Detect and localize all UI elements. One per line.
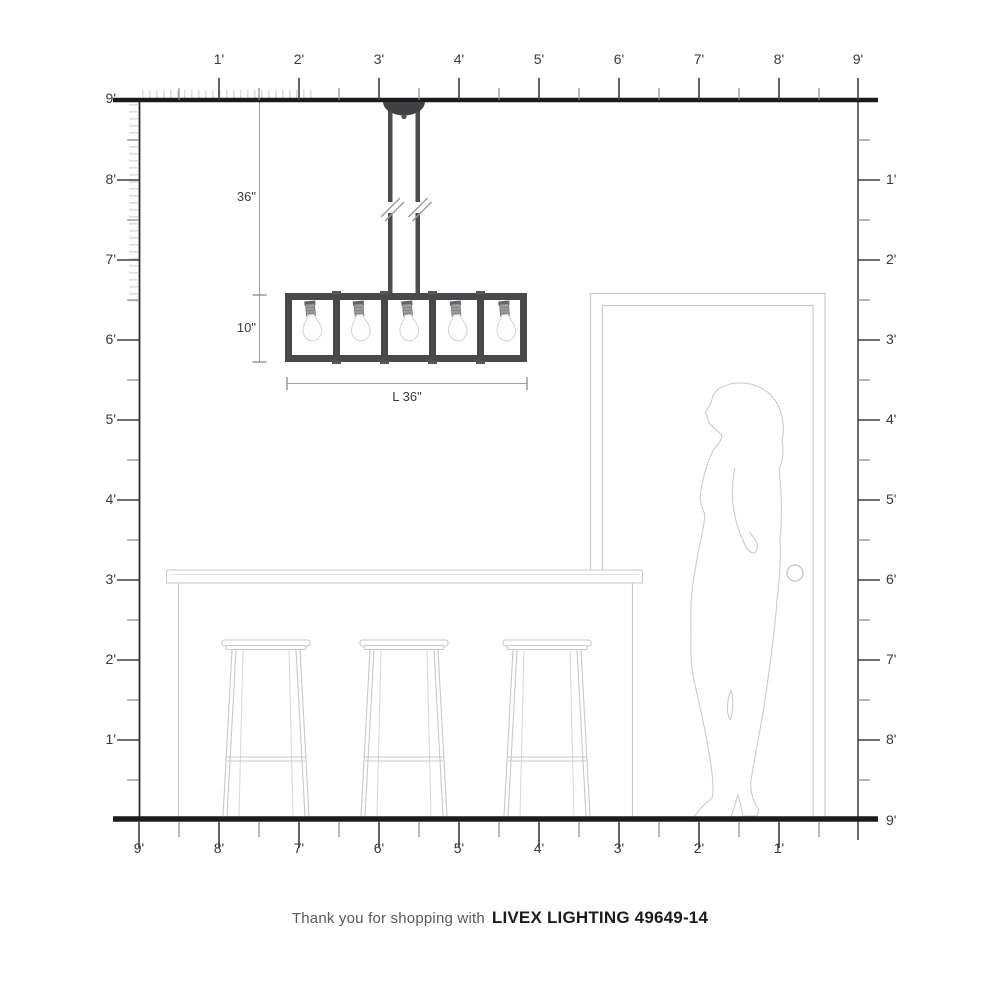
- right-ruler-floor-label: 9': [886, 812, 896, 828]
- bulb-icon: [397, 300, 419, 341]
- footer-product-name: LIVEX LIGHTING 49649-14: [492, 908, 708, 928]
- fixture-height-label: 10": [206, 320, 256, 335]
- downrod: [416, 102, 421, 294]
- island-countertop: [167, 570, 643, 583]
- top-ruler-label: 3': [359, 51, 399, 67]
- right-ruler-label: 1': [886, 171, 896, 187]
- chandelier: [285, 102, 527, 364]
- top-ruler-label: 1': [199, 51, 239, 67]
- right-ruler-label: 3': [886, 331, 896, 347]
- bottom-ruler-label: 8': [199, 840, 239, 856]
- top-ruler-label: 9': [838, 51, 878, 67]
- island-cabinet: [179, 583, 633, 819]
- bottom-ruler-label: 7': [279, 840, 319, 856]
- left-ruler-label: 7': [78, 251, 116, 267]
- bulb-icon: [300, 300, 322, 341]
- bottom-ruler-label: 2': [679, 840, 719, 856]
- footer-thanks-text: Thank you for shopping with: [292, 910, 485, 927]
- top-ruler-label: 5': [519, 51, 559, 67]
- left-ruler-label: 5': [78, 411, 116, 427]
- left-ruler-label: 4': [78, 491, 116, 507]
- right-ruler-label: 5': [886, 491, 896, 507]
- bulb-icon: [446, 300, 468, 341]
- downrod: [388, 102, 393, 294]
- product-dimension-diagram: { "title": "Room scale diagram for linea…: [0, 0, 1000, 1000]
- right-ruler-label: 2': [886, 251, 896, 267]
- top-ruler-label: 2': [279, 51, 319, 67]
- left-ruler-label: 2': [78, 651, 116, 667]
- drop-dimension-label: 36": [206, 189, 256, 204]
- bulbs: [300, 300, 516, 341]
- footer: Thank you for shopping with LIVEX LIGHTI…: [0, 908, 1000, 928]
- bottom-ruler-label: 6': [359, 840, 399, 856]
- fixture-length-label: L 36": [372, 389, 442, 404]
- right-ruler-label: 8': [886, 731, 896, 747]
- top-ruler-label: 7': [679, 51, 719, 67]
- doorknob: [787, 565, 803, 581]
- bulb-icon: [494, 300, 516, 341]
- right-ruler-label: 7': [886, 651, 896, 667]
- top-ruler-label: 4': [439, 51, 479, 67]
- bottom-ruler-label: 5': [439, 840, 479, 856]
- left-ruler-label: 8': [78, 171, 116, 187]
- left-ruler-label: 6': [78, 331, 116, 347]
- bottom-ruler-label: 1': [759, 840, 799, 856]
- left-ruler-label: 9': [78, 90, 116, 106]
- left-ruler-label: 1': [78, 731, 116, 747]
- top-ruler-label: 8': [759, 51, 799, 67]
- right-ruler-label: 6': [886, 571, 896, 587]
- top-ruler-ticks: [179, 78, 858, 100]
- left-ruler-label: 3': [78, 571, 116, 587]
- top-ruler-label: 6': [599, 51, 639, 67]
- right-ruler-label: 4': [886, 411, 896, 427]
- right-ruler-ticks: [858, 140, 880, 780]
- left-ruler-ticks: [117, 140, 139, 780]
- bottom-ruler-label: 4': [519, 840, 559, 856]
- bottom-ruler-label: 9': [119, 840, 159, 856]
- bottom-ruler-label: 3': [599, 840, 639, 856]
- bulb-icon: [349, 300, 371, 341]
